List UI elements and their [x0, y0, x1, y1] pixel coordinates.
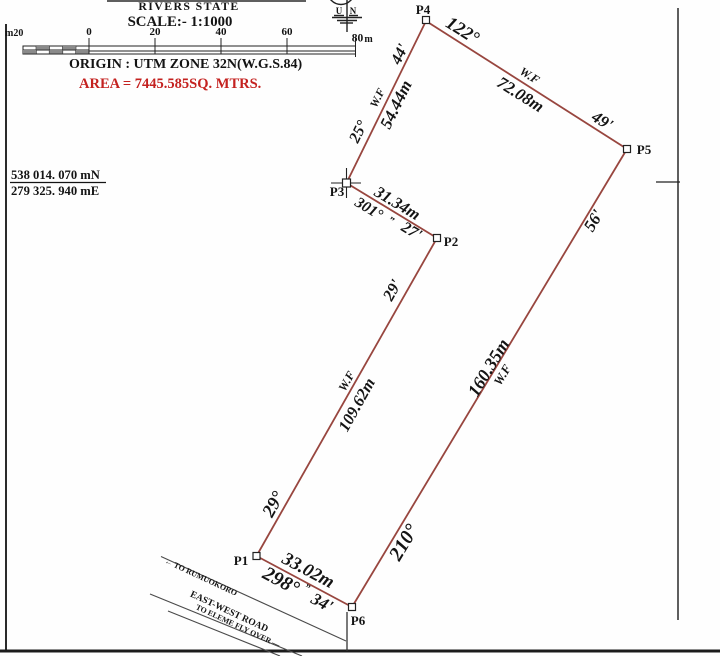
svg-text:P3: P3: [330, 184, 345, 199]
svg-text:AREA = 7445.585SQ. MTRS.: AREA = 7445.585SQ. MTRS.: [79, 76, 261, 92]
svg-text:m: m: [364, 34, 373, 45]
svg-text:P6: P6: [351, 613, 366, 628]
svg-text:P5: P5: [637, 142, 652, 157]
svg-text:U: U: [336, 6, 343, 16]
svg-text:20: 20: [150, 26, 162, 38]
svg-text:40: 40: [216, 26, 228, 38]
svg-text:P1: P1: [234, 553, 248, 568]
svg-text:60: 60: [282, 26, 294, 38]
svg-text:279 325. 940 mE: 279 325. 940 mE: [11, 184, 99, 198]
svg-text:80: 80: [352, 33, 364, 45]
svg-text:ORIGIN : UTM ZONE 32N(W.G.S.84: ORIGIN : UTM ZONE 32N(W.G.S.84): [69, 57, 303, 72]
svg-text:P2: P2: [444, 234, 458, 249]
svg-text:RIVERS STATE: RIVERS STATE: [138, 0, 239, 13]
svg-text:P4: P4: [416, 2, 431, 17]
svg-text:538 014. 070 mN: 538 014. 070 mN: [11, 168, 100, 182]
svg-text:0: 0: [86, 26, 92, 38]
svg-text:m20: m20: [5, 28, 23, 39]
svg-text:N: N: [350, 6, 357, 16]
